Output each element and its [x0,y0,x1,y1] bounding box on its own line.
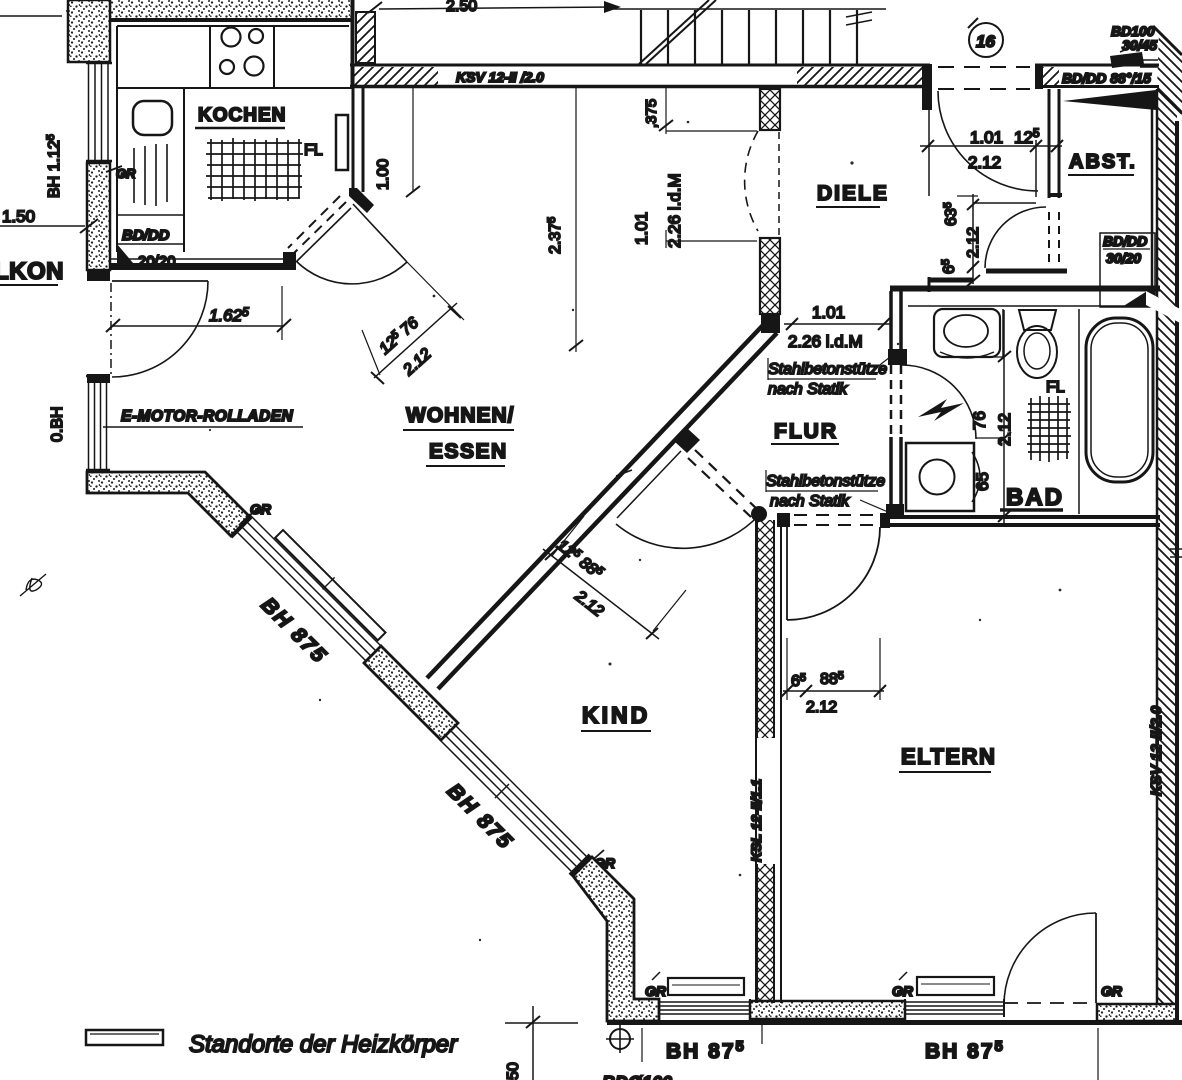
svg-text:nach Statik: nach Statik [770,493,850,510]
svg-text:BAD: BAD [1006,484,1064,511]
svg-text:2.12: 2.12 [995,413,1014,446]
svg-text:KIND: KIND [582,702,650,728]
svg-text:2.50: 2.50 [446,0,477,15]
svg-text:BH 875: BH 875 [925,1038,1005,1063]
svg-text:E-MOTOR-ROLLADEN: E-MOTOR-ROLLADEN [121,408,293,425]
svg-text:30/20: 30/20 [1106,250,1141,266]
svg-text:FL: FL [304,142,323,159]
svg-text:ELTERN: ELTERN [901,744,996,769]
svg-text:WOHNEN/: WOHNEN/ [406,404,515,427]
svg-text:2.26 i.d.M: 2.26 i.d.M [788,332,863,351]
svg-text:BH 1.125: BH 1.125 [45,134,63,198]
svg-text:GR: GR [1101,983,1123,999]
svg-text:BH 875: BH 875 [666,1038,746,1063]
svg-text:GR: GR [250,501,272,517]
svg-text:16: 16 [976,32,995,51]
svg-text:GR: GR [116,166,136,181]
svg-text:BD/DD 88°/15: BD/DD 88°/15 [1062,70,1151,86]
svg-text:BD/DD: BD/DD [1103,233,1147,249]
svg-text:Stahlbetonstütze: Stahlbetonstütze [766,473,885,490]
svg-text:2.12: 2.12 [965,227,982,258]
svg-text:BD/DD: BD/DD [122,227,170,244]
svg-text:2.12: 2.12 [968,153,1001,172]
svg-text:76: 76 [970,411,989,430]
svg-text:FLUR: FLUR [774,420,838,443]
svg-text:1.00: 1.00 [375,159,392,190]
svg-text:ABST.: ABST. [1069,151,1137,173]
svg-text:KSL 12-II/1.1: KSL 12-II/1.1 [748,779,764,862]
svg-text:GR: GR [645,983,667,999]
svg-text:Standorte der Heizkörper: Standorte der Heizkörper [189,1031,458,1058]
svg-text:1.50: 1.50 [2,207,35,226]
svg-text:1.01: 1.01 [970,128,1003,147]
svg-text:1.01: 1.01 [812,303,845,322]
svg-text:nach Statik: nach Statik [768,381,848,398]
svg-text:GR: GR [892,983,914,999]
svg-text:KSV 12-II /2.0: KSV 12-II /2.0 [456,69,544,85]
svg-text:50: 50 [505,1062,522,1080]
svg-text:1.01: 1.01 [632,212,651,245]
svg-text:2.26 i.d.M: 2.26 i.d.M [665,173,684,248]
svg-text:KSV 12-II/2.0: KSV 12-II/2.0 [1148,705,1165,796]
svg-text:2.12: 2.12 [806,699,837,716]
svg-text:0.BH: 0.BH [49,406,66,442]
svg-text:65: 65 [973,472,992,491]
svg-text:DIELE: DIELE [817,182,889,205]
svg-text:KOCHEN: KOCHEN [198,105,286,126]
svg-text:Stahlbetonstütze: Stahlbetonstütze [768,361,887,378]
svg-text:FL: FL [1046,379,1065,396]
svg-text:30/45: 30/45 [1122,37,1157,53]
svg-text:LKON: LKON [0,258,64,285]
svg-text:ESSEN: ESSEN [429,440,508,463]
svg-text:BDØ100: BDØ100 [602,1073,672,1080]
svg-text:,375: ,375 [643,99,660,128]
